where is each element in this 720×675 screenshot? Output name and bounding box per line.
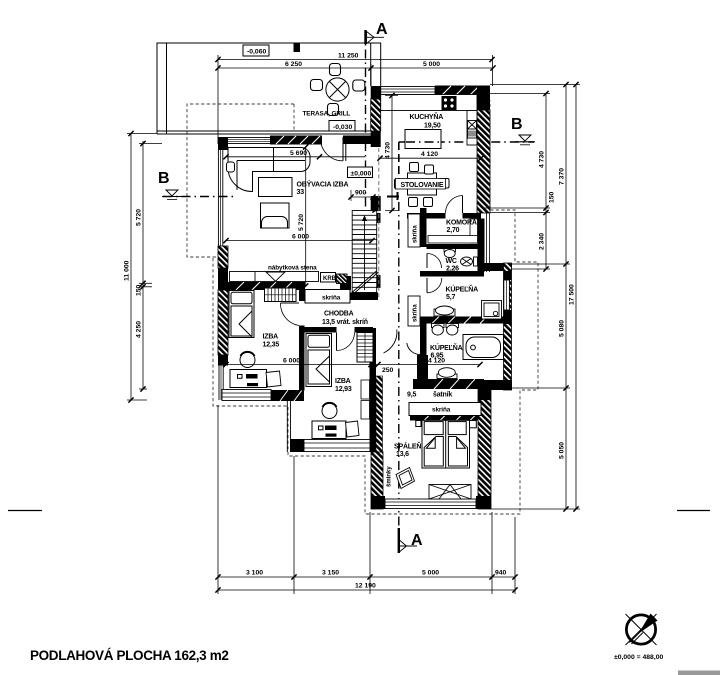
svg-text:IZBA: IZBA	[263, 334, 279, 341]
svg-text:A: A	[376, 21, 388, 38]
svg-text:4 730: 4 730	[539, 151, 546, 168]
svg-text:STOLOVANIE: STOLOVANIE	[401, 182, 444, 189]
svg-text:5 720: 5 720	[136, 209, 143, 226]
svg-text:KRB: KRB	[323, 276, 337, 282]
svg-text:KÚPEĽŇA: KÚPEĽŇA	[446, 285, 479, 294]
svg-text:SPÁLEŇ: SPÁLEŇ	[394, 442, 421, 451]
svg-text:12,93: 12,93	[335, 386, 352, 393]
svg-text:KUCHYŇA: KUCHYŇA	[410, 112, 444, 121]
svg-text:-0,060: -0,060	[247, 49, 266, 56]
svg-text:skriňa: skriňa	[413, 225, 419, 243]
svg-text:5 080: 5 080	[559, 320, 566, 337]
svg-text:5 690: 5 690	[290, 150, 307, 157]
svg-text:PODLAHOVÁ PLOCHA 162,3 m2: PODLAHOVÁ PLOCHA 162,3 m2	[30, 648, 229, 663]
svg-text:150: 150	[136, 284, 143, 296]
svg-text:-0,030: -0,030	[333, 124, 352, 131]
svg-text:13,5 vrát. skríň: 13,5 vrát. skríň	[322, 319, 368, 326]
svg-text:5 720: 5 720	[298, 214, 305, 231]
svg-text:7 370: 7 370	[559, 168, 566, 185]
svg-text:KOMORA: KOMORA	[446, 220, 477, 227]
svg-text:4 730: 4 730	[385, 142, 392, 159]
svg-text:12,35: 12,35	[263, 342, 280, 349]
svg-text:B: B	[158, 170, 170, 187]
svg-text:5 050: 5 050	[559, 442, 566, 459]
svg-text:TERASA, GRILL: TERASA, GRILL	[303, 111, 351, 118]
svg-text:250: 250	[382, 367, 394, 374]
svg-text:12 190: 12 190	[355, 583, 376, 590]
svg-text:6,95: 6,95	[431, 353, 444, 360]
svg-text:6 000: 6 000	[283, 357, 300, 364]
svg-text:5 000: 5 000	[422, 570, 439, 577]
svg-text:900: 900	[355, 190, 367, 197]
svg-text:9,5: 9,5	[407, 392, 416, 399]
svg-text:2 340: 2 340	[539, 233, 546, 250]
svg-text:2,26: 2,26	[446, 266, 459, 273]
svg-text:3 150: 3 150	[322, 570, 339, 577]
svg-text:33: 33	[297, 189, 305, 196]
svg-text:skriňa: skriňa	[432, 407, 451, 414]
svg-text:4 120: 4 120	[421, 151, 438, 158]
svg-text:13,6: 13,6	[396, 451, 409, 458]
svg-text:940: 940	[495, 570, 507, 577]
svg-text:5 000: 5 000	[423, 61, 440, 68]
svg-text:OBÝVACIA IZBA: OBÝVACIA IZBA	[297, 180, 349, 189]
svg-text:4 250: 4 250	[136, 321, 143, 338]
svg-text:5,7: 5,7	[446, 294, 455, 301]
svg-text:IZBA: IZBA	[335, 378, 351, 385]
svg-text:11 250: 11 250	[338, 53, 359, 60]
svg-text:17 500: 17 500	[569, 284, 576, 305]
svg-text:±0,000: ±0,000	[351, 170, 372, 177]
svg-text:šatník: šatník	[433, 392, 452, 399]
svg-text:150: 150	[549, 191, 556, 203]
svg-text:6 000: 6 000	[292, 234, 309, 241]
svg-text:±0,000 = 488,00: ±0,000 = 488,00	[614, 654, 663, 661]
svg-text:WC: WC	[446, 258, 457, 265]
svg-text:3 100: 3 100	[246, 570, 263, 577]
svg-text:šminky: šminky	[387, 466, 393, 487]
svg-text:KÚPEĽŇA: KÚPEĽŇA	[430, 343, 463, 352]
svg-text:CHODBA: CHODBA	[324, 311, 354, 318]
svg-text:skriňa: skriňa	[322, 295, 341, 302]
svg-text:B: B	[511, 116, 523, 133]
svg-text:11 000: 11 000	[124, 260, 131, 281]
svg-text:19,50: 19,50	[424, 123, 441, 130]
svg-text:2,70: 2,70	[447, 227, 460, 234]
svg-text:nábytková stena: nábytková stena	[268, 265, 317, 272]
svg-text:skriňa: skriňa	[413, 304, 419, 322]
svg-text:6 250: 6 250	[285, 61, 302, 68]
